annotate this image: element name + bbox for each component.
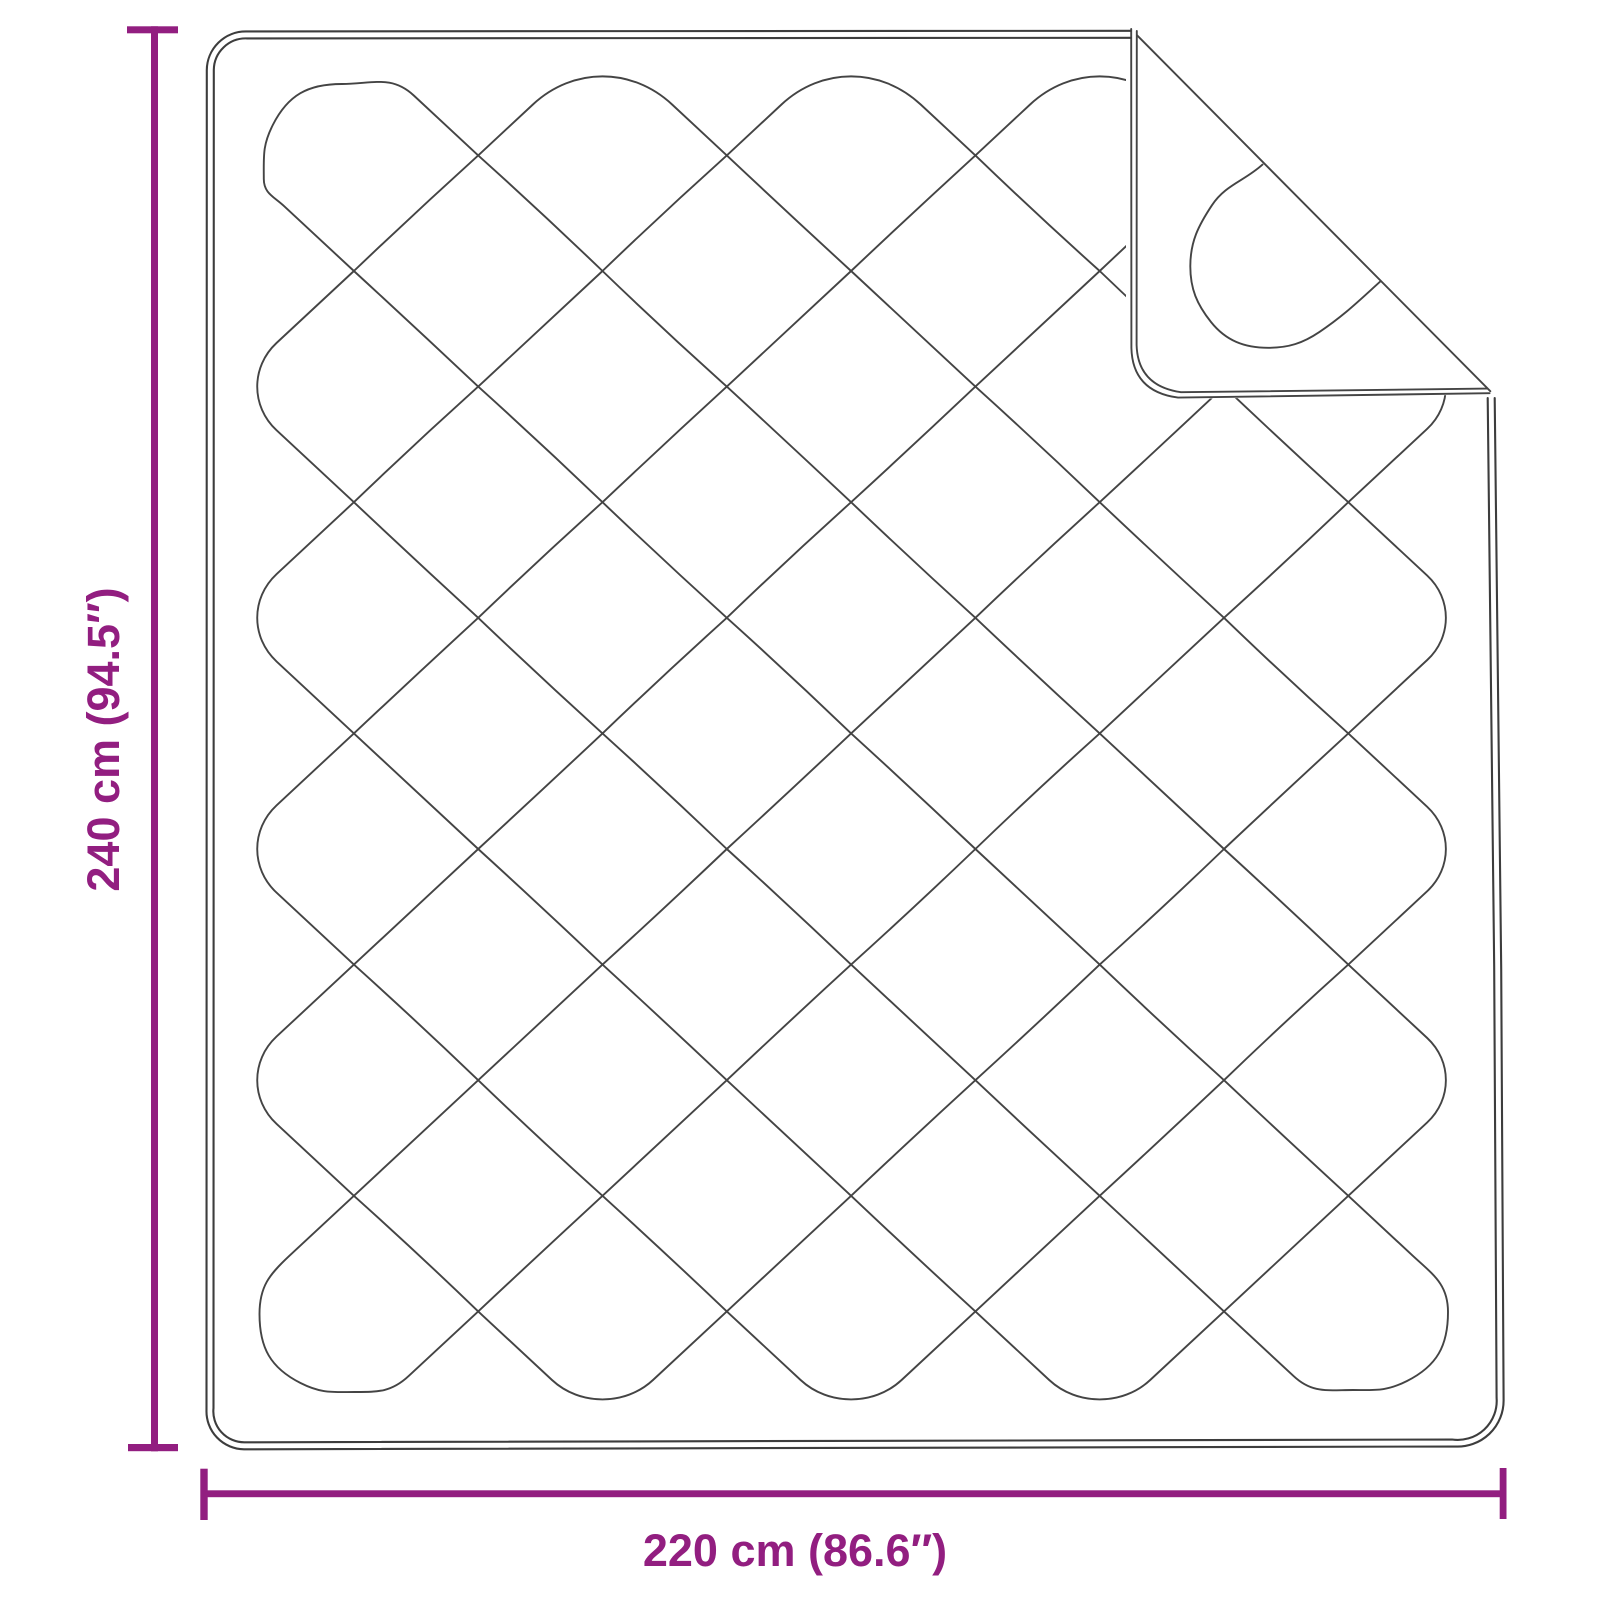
svg-text:220 cm (86.6″): 220 cm (86.6″) [643, 1525, 947, 1576]
svg-text:240 cm (94.5″): 240 cm (94.5″) [78, 587, 129, 891]
